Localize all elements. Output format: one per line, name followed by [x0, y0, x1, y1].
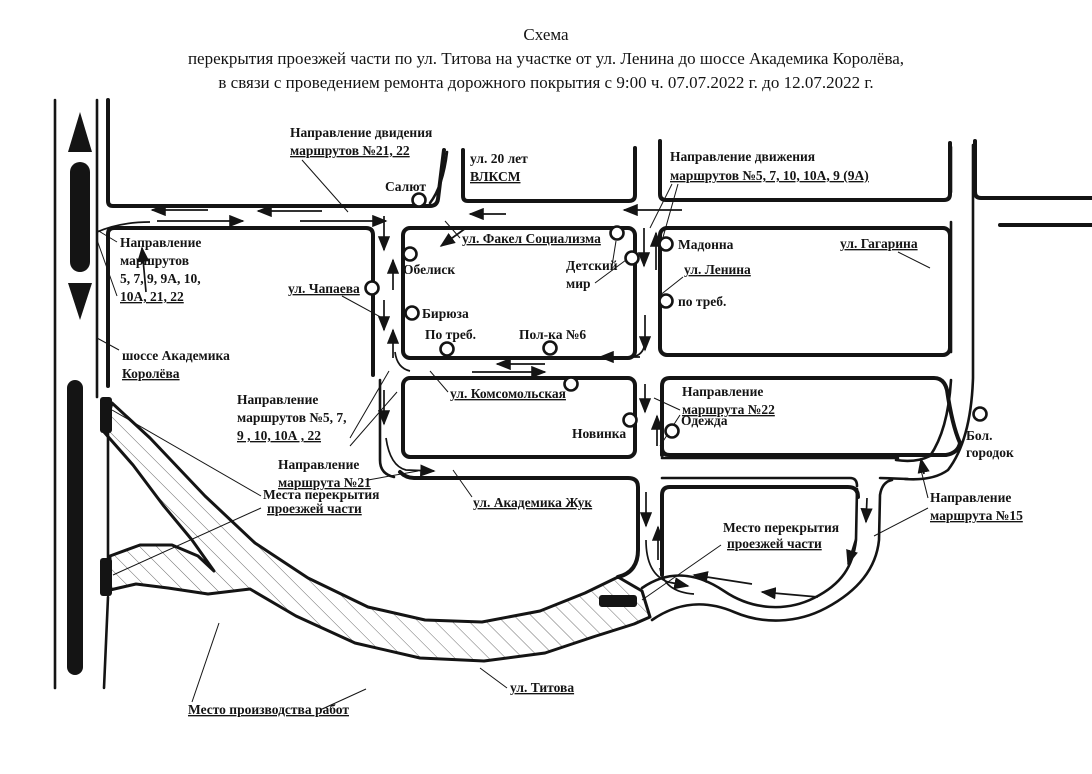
bus-stop-circle-po-treb-left: [441, 343, 454, 356]
label-dir-left-line2: маршрутов: [120, 253, 189, 268]
label-dir-left-line4: 10А, 21, 22: [120, 289, 184, 304]
street-titova: ул. Титова: [510, 680, 574, 695]
median-bar-lower: [67, 380, 83, 675]
bus-stop-circle-madonna: [660, 238, 673, 251]
chapaeva-south-edge: [380, 380, 394, 477]
gagarina-curve-west: [896, 380, 951, 461]
street-fakel: ул. Факел Социализма: [462, 231, 601, 246]
bus-stop-circle-obelisk: [404, 248, 417, 261]
stop-label-detsky-line2: мир: [566, 276, 590, 291]
stop-label-po-treb-right: по треб.: [678, 294, 726, 309]
median-bar-upper: [70, 162, 90, 272]
street-chapaeva: ул. Чапаева: [288, 281, 360, 296]
stop-label-bol-gorodok-line2: городок: [966, 445, 1014, 460]
stop-label-biryuza: Бирюза: [422, 306, 469, 321]
bus-stop-circle-novinka: [624, 414, 637, 427]
city-blocks: [108, 100, 1092, 577]
scheme-title: Схема перекрытия проезжей части по ул. Т…: [188, 25, 904, 92]
stop-label-novinka: Новинка: [572, 426, 626, 441]
label-dir-22-line1: Направление: [682, 384, 763, 399]
label-places-closure-line2: проезжей части: [267, 501, 362, 516]
closed-road-titova: [104, 403, 650, 661]
stop-label-po-treb-left: По треб.: [425, 327, 476, 342]
street-gagarina: ул. Гагарина: [840, 236, 918, 251]
bus-stop-circle-salyut: [413, 194, 426, 207]
label-dir-57-line1: Направление: [237, 392, 318, 407]
title-line3: в связи с проведением ремонта дорожного …: [218, 73, 873, 92]
street-shosse-line2: Королёва: [122, 366, 180, 381]
label-dir-5-right-line1: Направление движения: [670, 149, 815, 164]
label-dir-15-line1: Направление: [930, 490, 1011, 505]
label-dir-left-line1: Направление: [120, 235, 201, 250]
road-closure-scheme: Схема перекрытия проезжей части по ул. Т…: [0, 0, 1092, 774]
street-zhuk: ул. Академика Жук: [473, 495, 592, 510]
block-zhuk-south: [400, 472, 638, 577]
label-dir-15-line2: маршрута №15: [930, 508, 1023, 523]
bus-stop-circle-po-treb-right: [660, 295, 673, 308]
closure-bar-titova-lenina: [599, 595, 637, 607]
title-line1: Схема: [523, 25, 569, 44]
title-line2: перекрытия проезжей части по ул. Титова …: [188, 49, 904, 68]
bus-stop-circle-biryuza: [406, 307, 419, 320]
label-place-closure-line2: проезжей части: [727, 536, 822, 551]
median-arrow-up: [68, 112, 92, 152]
highway: [55, 100, 108, 688]
bus-stop-circle-polka6: [544, 342, 557, 355]
closure-bar-shosse-north: [100, 397, 112, 433]
bus-stop-circle-detsky-mir-1: [611, 227, 624, 240]
street-vlksm-line2: ВЛКСМ: [470, 169, 521, 184]
bus-stop-circle-odezhda: [666, 425, 679, 438]
bus-stop-circle-komsomolskaya: [565, 378, 578, 391]
stop-label-detsky-line1: Детский: [566, 258, 618, 273]
median-arrow-down: [68, 283, 92, 320]
gagarina-east-edge: [905, 145, 973, 479]
stop-label-madonna: Мадонна: [678, 237, 734, 252]
label-dir-21-22-line1: Направление двидения: [290, 125, 432, 140]
highway-inner-edge-bottom: [104, 597, 108, 688]
block-far-right-top: [975, 141, 1092, 198]
street-vlksm-line1: ул. 20 лет: [470, 151, 528, 166]
stop-label-polka6: Пол-ка №6: [519, 327, 586, 342]
label-dir-57-line3: 9 , 10, 10А , 22: [237, 428, 321, 443]
label-dir-left-line3: 5, 7, 9, 9А, 10,: [120, 271, 201, 286]
stop-label-odezhda: Одежда: [681, 413, 728, 428]
closure-bar-shosse-south: [100, 558, 112, 596]
bus-stop-circle-chapaeva: [366, 282, 379, 295]
open-roads: [380, 145, 973, 621]
label-dir-57-line2: маршрутов №5, 7,: [237, 410, 347, 425]
scheme-canvas: Схема перекрытия проезжей части по ул. Т…: [0, 0, 1092, 774]
label-place-closure-line1: Место перекрытия: [723, 520, 839, 535]
label-dir-21-22-line2: маршрутов №21, 22: [290, 143, 410, 158]
label-places-closure-line1: Места перекрытия: [263, 487, 379, 502]
stop-label-obelisk: Обелиск: [403, 262, 455, 277]
stop-label-salyut: Салют: [385, 179, 426, 194]
label-dir-5-right-line2: маршрутов №5, 7, 10, 10А, 9 (9А): [670, 168, 869, 183]
label-dir-21-line1: Направление: [278, 457, 359, 472]
street-shosse-line1: шоссе Академика: [122, 348, 230, 363]
street-komsomolskaya: ул. Комсомольская: [450, 386, 566, 401]
bus-stop-circle-bol-gorodok: [974, 408, 987, 421]
stop-label-bol-gorodok-line1: Бол.: [966, 428, 992, 443]
bus-stop-circle-detsky-mir-2: [626, 252, 639, 265]
street-lenina-label: ул. Ленина: [684, 262, 751, 277]
label-work-site: Место производства работ: [188, 702, 349, 717]
zhuk-east-south-edge: [662, 478, 857, 486]
